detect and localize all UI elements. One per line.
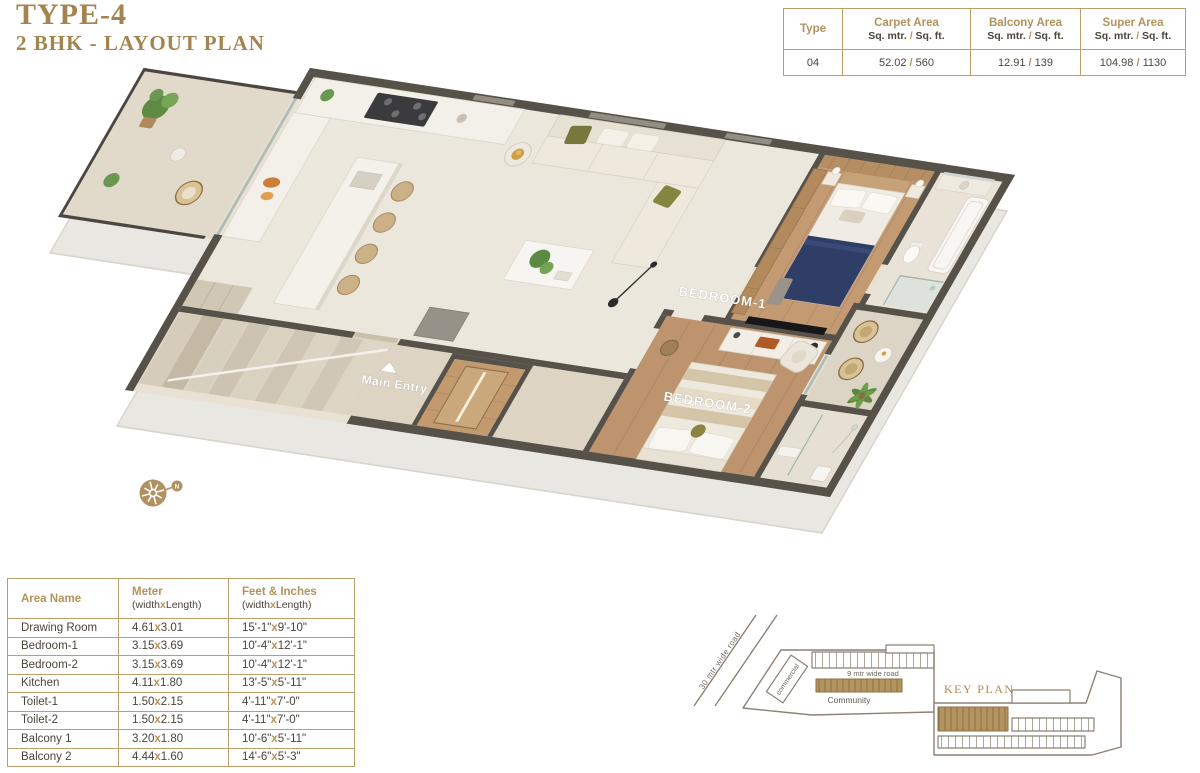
dimension-feet-value: 10'-6"x5'-11" — [229, 730, 355, 749]
dimension-row: Balcony 13.20x1.8010'-6"x5'-11" — [8, 730, 355, 749]
dimension-meter-value: 3.15x3.69 — [119, 656, 229, 675]
dimension-meter-value: 4.11x1.80 — [119, 674, 229, 693]
dimension-area-name: Bedroom-1 — [8, 637, 119, 656]
key-plan-road-9-label: 9 mtr wide road — [847, 669, 899, 678]
dimension-row: Toilet-11.50x2.154'-11"x7'-0" — [8, 693, 355, 712]
dimension-area-name: Balcony 2 — [8, 748, 119, 767]
dimension-row: Bedroom-23.15x3.6910'-4"x12'-1" — [8, 656, 355, 675]
dimension-feet-value: 4'-11"x7'-0" — [229, 693, 355, 712]
dimension-feet-value: 4'-11"x7'-0" — [229, 711, 355, 730]
dimension-feet-value: 14'-6"x5'-3" — [229, 748, 355, 767]
brochure-page: TYPE-4 2 BHK - LAYOUT PLAN Type Carpet A… — [0, 0, 1200, 773]
dimension-area-name: Toilet-2 — [8, 711, 119, 730]
dimension-table-header: Area Name Meter (widthxLength) Feet & In… — [8, 579, 355, 619]
dimension-feet-value: 13'-5"x5'-11" — [229, 674, 355, 693]
dimension-meter-value: 1.50x2.15 — [119, 693, 229, 712]
dimension-row: Toilet-21.50x2.154'-11"x7'-0" — [8, 711, 355, 730]
dimension-area-name: Bedroom-2 — [8, 656, 119, 675]
dimension-meter-value: 4.44x1.60 — [119, 748, 229, 767]
dim-header-feet: Feet & Inches (widthxLength) — [229, 579, 355, 619]
dimension-meter-value: 3.15x3.69 — [119, 637, 229, 656]
dimension-meter-value: 3.20x1.80 — [119, 730, 229, 749]
dim-header-area-name: Area Name — [8, 579, 119, 619]
dimension-row: Balcony 24.44x1.6014'-6"x5'-3" — [8, 748, 355, 767]
dimension-meter-value: 4.61x3.01 — [119, 619, 229, 638]
compass-north-label: N — [175, 484, 180, 491]
dimension-table: Area Name Meter (widthxLength) Feet & In… — [7, 578, 355, 767]
compass-icon: N — [136, 476, 182, 509]
dimension-area-name: Kitchen — [8, 674, 119, 693]
dimension-feet-value: 10'-4"x12'-1" — [229, 637, 355, 656]
dimension-row: Kitchen4.11x1.8013'-5"x5'-11" — [8, 674, 355, 693]
key-plan: 30 mtr wide road commercial 9 mtr wide r… — [694, 615, 1121, 755]
dimension-meter-value: 1.50x2.15 — [119, 711, 229, 730]
dimension-row: Bedroom-13.15x3.6910'-4"x12'-1" — [8, 637, 355, 656]
key-plan-community-label: Community — [828, 695, 872, 705]
floor-plan: BEDROOM-1 BEDROOM-2 Main Entry N — [0, 45, 1015, 533]
dimension-area-name: Balcony 1 — [8, 730, 119, 749]
dimension-feet-value: 10'-4"x12'-1" — [229, 656, 355, 675]
dim-header-meter: Meter (widthxLength) — [119, 579, 229, 619]
key-plan-road-30-label: 30 mtr wide road — [697, 630, 742, 691]
dimension-area-name: Drawing Room — [8, 619, 119, 638]
dimension-feet-value: 15'-1"x9'-10" — [229, 619, 355, 638]
dimension-area-name: Toilet-1 — [8, 693, 119, 712]
key-plan-title: KEY PLAN — [944, 682, 1015, 696]
dimension-row: Drawing Room4.61x3.0115'-1"x9'-10" — [8, 619, 355, 638]
